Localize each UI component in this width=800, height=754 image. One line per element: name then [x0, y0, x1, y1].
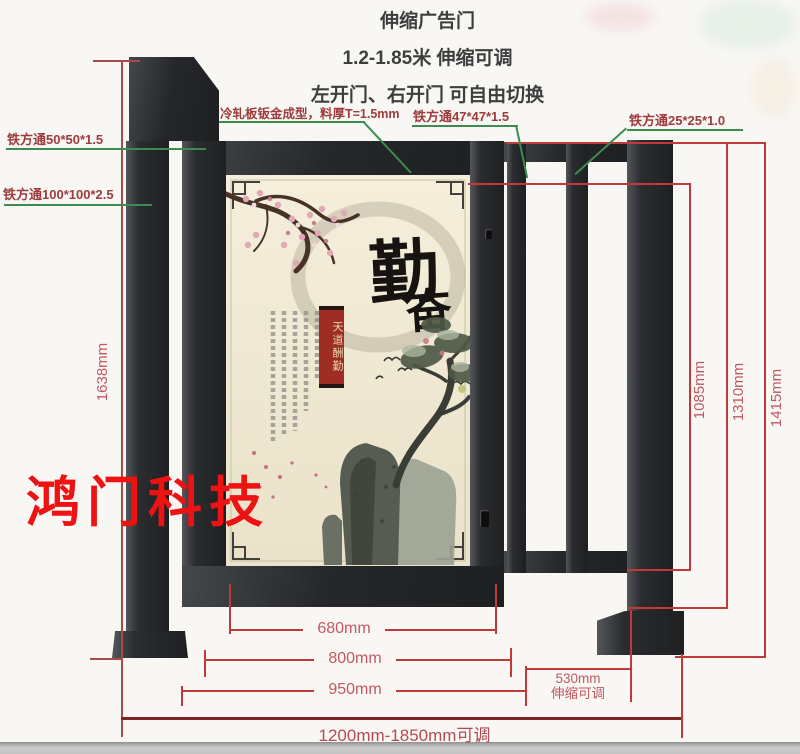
dim-label-680: 680mm	[303, 620, 385, 638]
callout-tube100: 铁方通100*100*2.5	[3, 184, 114, 203]
door-top-rail	[182, 141, 504, 175]
dim-line-530	[527, 668, 632, 670]
rock-light	[394, 459, 456, 565]
door-left-stile	[182, 141, 226, 607]
door-lock-knob	[485, 229, 492, 239]
rock-small	[322, 515, 342, 565]
dim-label-530-value: 530mm	[536, 671, 620, 686]
tree-blossom	[440, 351, 445, 356]
subtitle-range: 1.2-1.85米 伸缩可调	[225, 43, 630, 70]
right-pillar-base	[597, 611, 684, 655]
dim-tick-1085-top	[468, 183, 691, 185]
dim-label-530-note: 伸缩可调	[536, 686, 620, 701]
dim-line-1415	[764, 143, 766, 657]
tree-blossom	[423, 338, 429, 344]
dim-label-1638: 1638mm	[95, 337, 111, 407]
dim-label-1415: 1415mm	[769, 363, 785, 433]
leader-tube47	[412, 125, 518, 127]
dim-tick-1085-bottom	[627, 569, 691, 571]
dim-tick-1415-bottom	[675, 656, 766, 658]
callout-tube50: 铁方通50*50*1.5	[7, 129, 103, 148]
photo-artifact	[752, 58, 796, 118]
page-title: 伸缩广告门	[225, 6, 630, 33]
telescopic-bar-47	[507, 142, 526, 573]
left-pillar	[126, 141, 169, 633]
seal-banner: 天道酬勤	[319, 306, 344, 388]
dim-ext-950-left	[181, 686, 183, 706]
dim-ext-800-right	[510, 648, 512, 677]
dim-line-1638	[121, 61, 123, 737]
leader-tube100	[4, 204, 152, 206]
title-block: 伸缩广告门 1.2-1.85米 伸缩可调 左开门、右开门 可自由切换	[225, 6, 630, 107]
telescopic-bar-25	[566, 142, 588, 573]
dim-ext-total-right	[681, 654, 683, 738]
dim-ext-680-left	[229, 584, 231, 634]
rock-shadow	[350, 457, 376, 565]
callout-tube25: 铁方通25*25*1.0	[629, 110, 725, 129]
left-pillar-base	[112, 631, 188, 658]
dim-label-1085: 1085mm	[692, 355, 708, 425]
leader-tube50	[6, 148, 206, 150]
motor-housing	[129, 57, 219, 141]
dim-label-800: 800mm	[314, 650, 396, 668]
dim-label-950: 950mm	[314, 681, 396, 699]
dim-tick-1638-bottom	[90, 658, 122, 660]
door-handle	[480, 510, 489, 527]
right-pillar	[627, 140, 673, 614]
dim-ext-800-left	[204, 650, 206, 677]
dim-label-total-width: 1200mm-1850mm可调	[282, 721, 527, 746]
dim-ext-530-right	[630, 610, 632, 702]
watermark: 鸿门科技	[26, 458, 270, 537]
dim-tick-1310-bottom	[627, 607, 728, 609]
leader-tube25	[627, 129, 743, 131]
dim-label-1310: 1310mm	[731, 357, 747, 427]
dim-ext-680-right	[495, 584, 497, 634]
callout-coldplate: 冷轧板钣金成型，料厚T=1.5mm	[220, 103, 400, 122]
dim-label-530: 530mm 伸缩可调	[536, 671, 620, 701]
door-right-stile	[470, 141, 504, 607]
photo-artifact	[700, 0, 795, 48]
product-diagram: 伸缩广告门 1.2-1.85米 伸缩可调 左开门、右开门 可自由切换	[0, 0, 800, 754]
callout-tube47: 铁方通47*47*1.5	[413, 106, 509, 125]
foliage-accent	[458, 385, 466, 393]
dim-tick-1638-top	[93, 60, 140, 62]
dim-line-1310	[726, 143, 728, 608]
dim-line-total-width	[121, 717, 683, 720]
dim-ext-950-right	[525, 666, 527, 706]
